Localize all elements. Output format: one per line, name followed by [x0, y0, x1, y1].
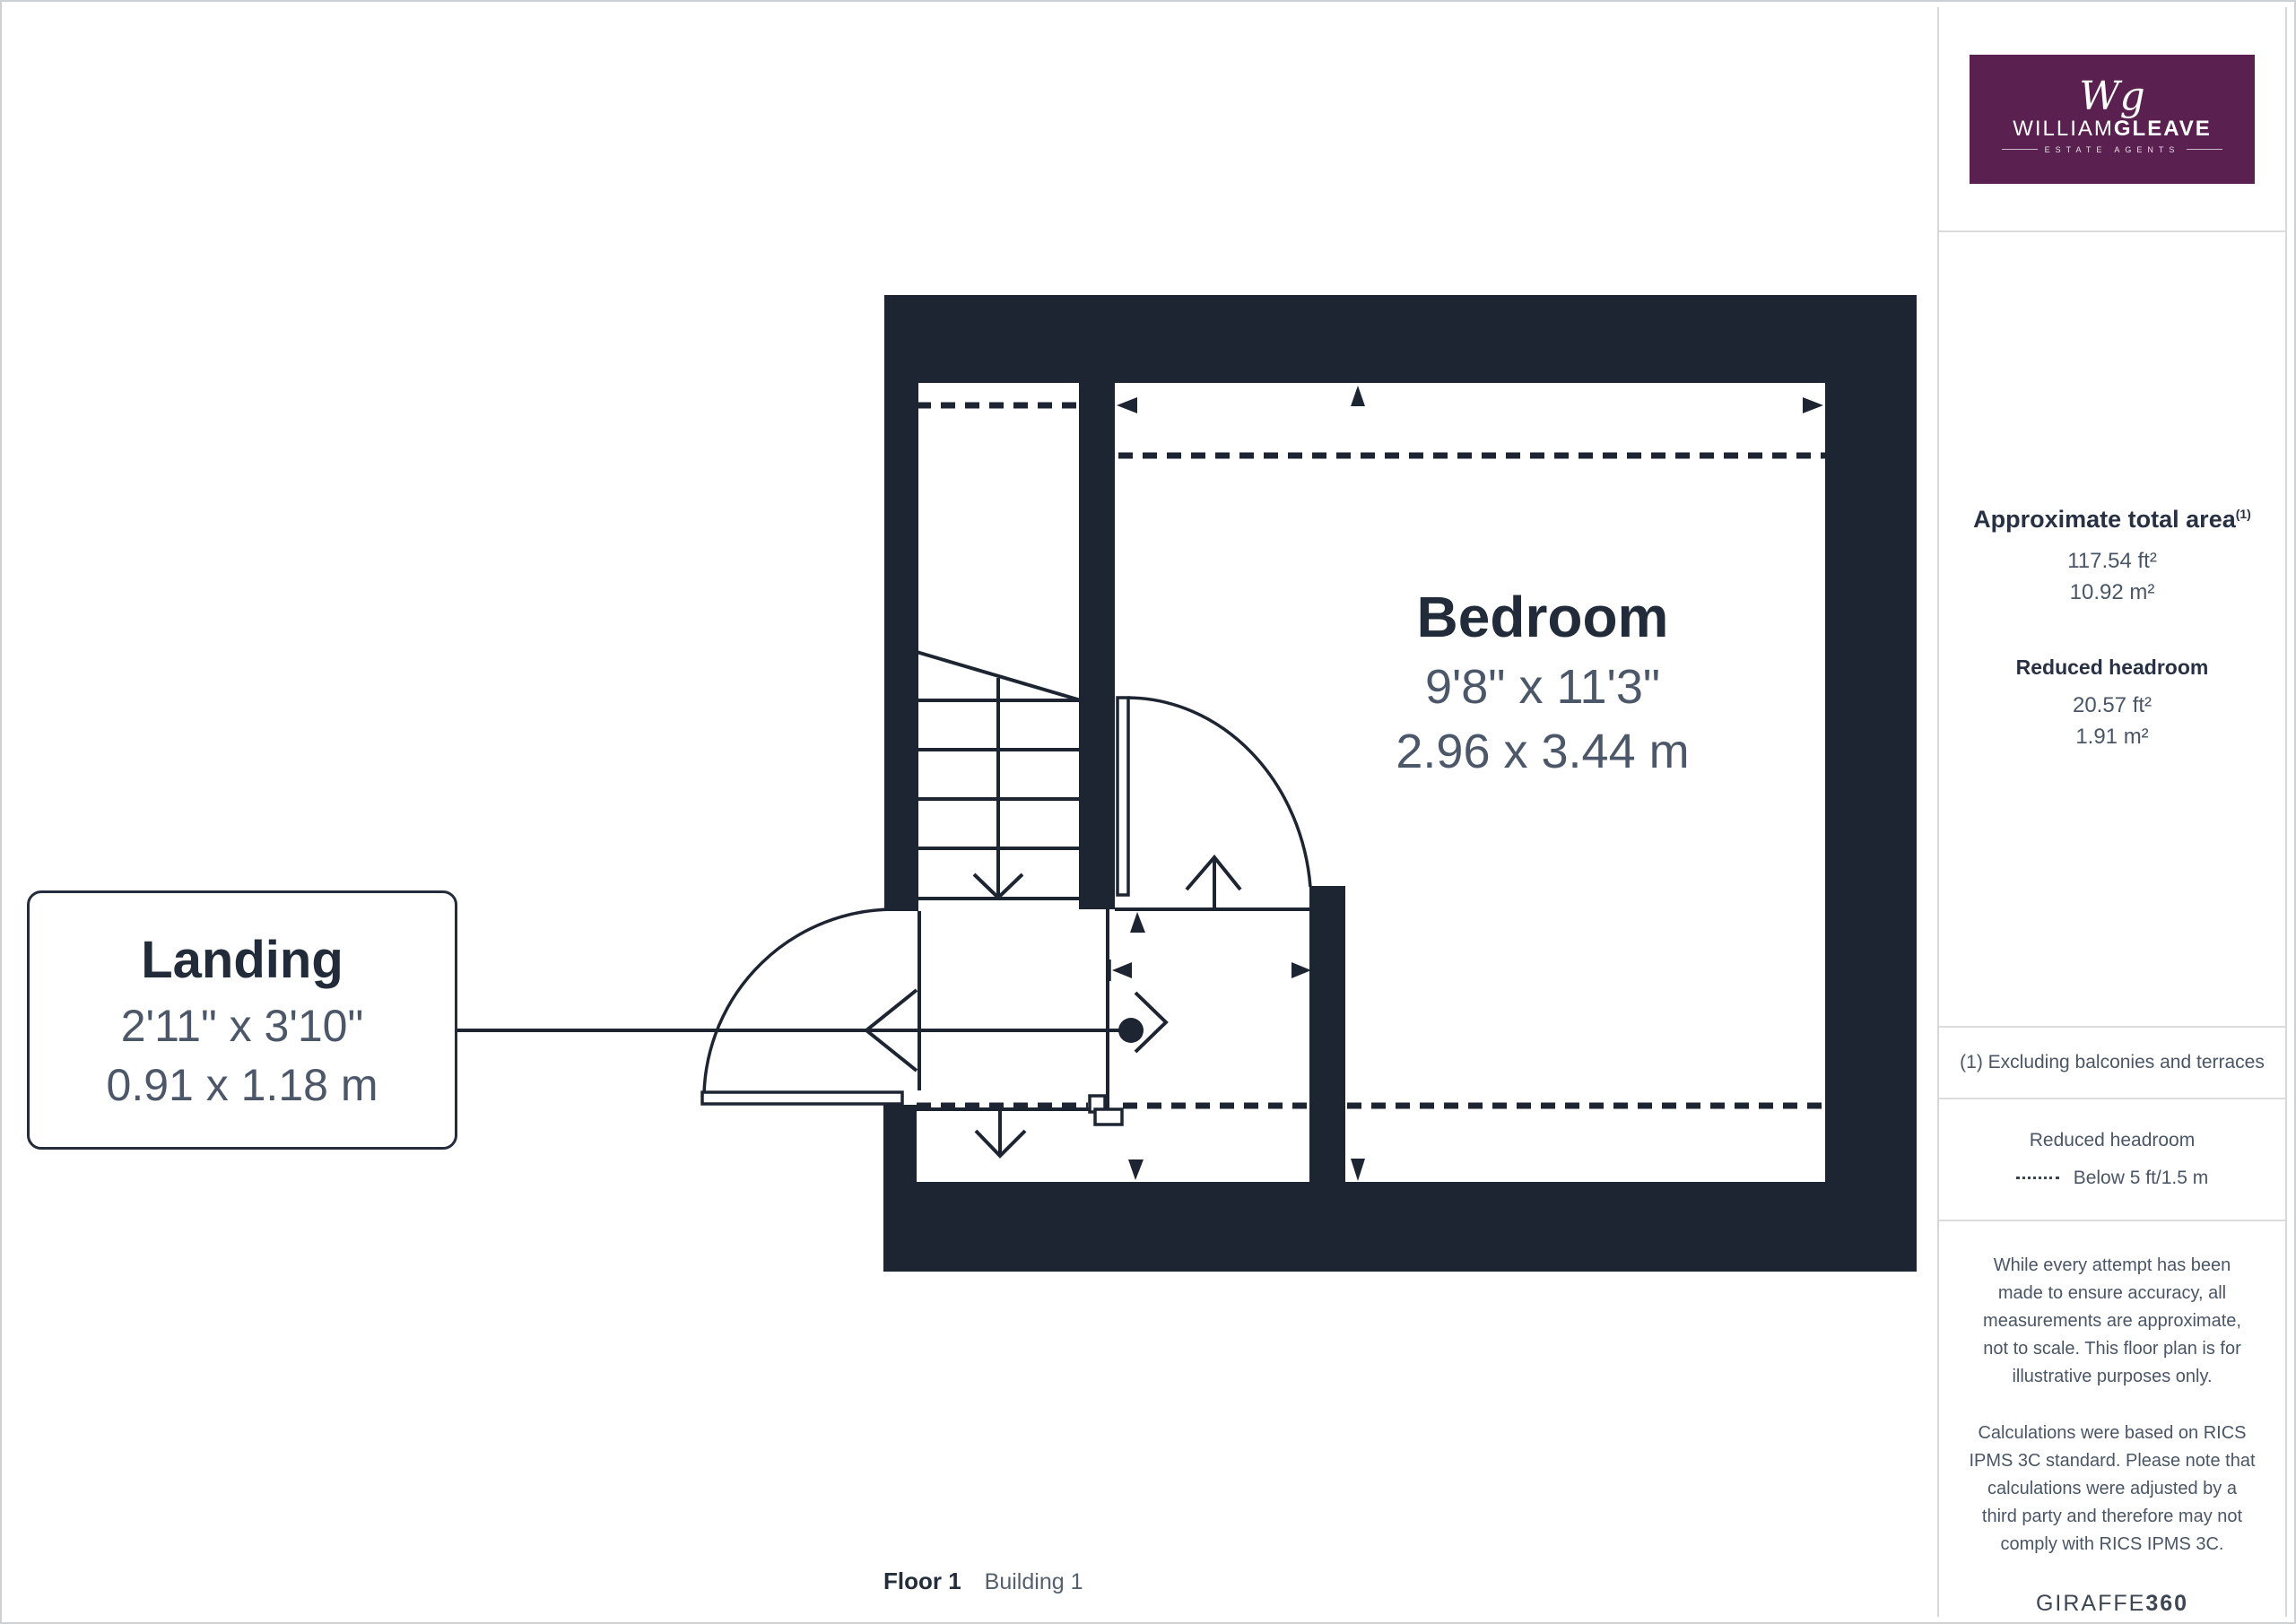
total-area-ft: 117.54 ft² [2067, 546, 2157, 578]
logo-monogram-icon: Wg [2079, 79, 2144, 115]
reduced-headroom-m: 1.91 m² [2075, 722, 2148, 753]
agency-logo-section: Wg WILLIAMGLEAVE ESTATE AGENTS [1939, 7, 2285, 232]
disclaimer-section: While every attempt has been made to ens… [1939, 1221, 2285, 1617]
reduced-headroom-ft: 20.57 ft² [2073, 690, 2152, 722]
landing-name: Landing [141, 925, 344, 995]
disclaimer-paragraph-2: Calculations were based on RICS IPMS 3C … [1969, 1420, 2256, 1559]
agency-logo: Wg WILLIAMGLEAVE ESTATE AGENTS [1970, 55, 2255, 184]
giraffe360-brand: GIRAFFE360 [2036, 1591, 2188, 1617]
logo-name-thin: WILLIAM [2013, 117, 2114, 141]
brand-name: GIRAFFE [2036, 1591, 2145, 1616]
info-sidebar: Wg WILLIAMGLEAVE ESTATE AGENTS Approxima… [1937, 7, 2287, 1617]
logo-name-bold: GLEAVE [2114, 117, 2212, 141]
dashed-line-icon [2016, 1177, 2059, 1179]
building-name: Building 1 [985, 1569, 1083, 1595]
landing-leader [452, 990, 1166, 1071]
interior-lines [917, 909, 1309, 1112]
area-stats-section: Approximate total area(1) 117.54 ft² 10.… [1939, 232, 2285, 1028]
legend-title: Reduced headroom [2030, 1130, 2195, 1151]
door-stop-marker [1090, 1096, 1122, 1125]
reduced-headroom-heading: Reduced headroom [2016, 656, 2209, 680]
bedroom-label: Bedroom 9'8" x 11'3" 2.96 x 3.44 m [1274, 578, 1812, 784]
bedroom-imperial: 9'8" x 11'3" [1425, 656, 1660, 719]
logo-name: WILLIAMGLEAVE [2013, 117, 2212, 142]
floor-name: Floor 1 [883, 1568, 961, 1595]
total-area-heading: Approximate total area(1) [1973, 506, 2251, 534]
leader-dot [1118, 1018, 1144, 1043]
total-area-heading-text: Approximate total area [1973, 506, 2236, 533]
landing-imperial: 2'11" x 3'10" [121, 996, 364, 1055]
landing-metric: 0.91 x 1.18 m [107, 1055, 378, 1115]
legend-row: Below 5 ft/1.5 m [2016, 1168, 2209, 1189]
footnote-section: (1) Excluding balconies and terraces [1939, 1028, 2285, 1099]
bedroom-metric: 2.96 x 3.44 m [1396, 720, 1689, 784]
total-area-m: 10.92 m² [2070, 578, 2155, 609]
footnote-text: (1) Excluding balconies and terraces [1960, 1052, 2265, 1073]
bedroom-name: Bedroom [1417, 578, 1669, 656]
landing-callout: Landing 2'11" x 3'10" 0.91 x 1.18 m [27, 890, 457, 1150]
floorplan-page: Bedroom 9'8" x 11'3" 2.96 x 3.44 m Landi… [0, 0, 2296, 1624]
floor-label: Floor 1 Building 1 [883, 1568, 1083, 1595]
legend-label: Below 5 ft/1.5 m [2074, 1168, 2209, 1189]
staircase [917, 652, 1081, 899]
total-area-superscript: (1) [2236, 507, 2251, 521]
legend-section: Reduced headroom Below 5 ft/1.5 m [1939, 1099, 2285, 1221]
disclaimer-paragraph-1: While every attempt has been made to ens… [1969, 1252, 2256, 1391]
landing-exterior-door [702, 909, 902, 1104]
brand-suffix: 360 [2145, 1591, 2188, 1616]
logo-subtitle: ESTATE AGENTS [2002, 145, 2223, 154]
